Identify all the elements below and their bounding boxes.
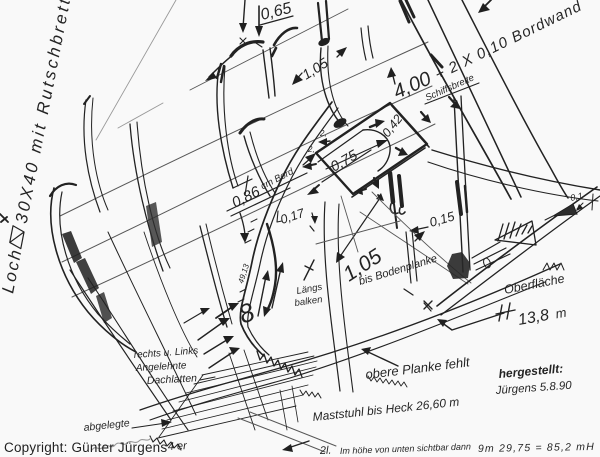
svg-text:9m 29,75 = 85,2 mH: 9m 29,75 = 85,2 mH (478, 441, 595, 455)
svg-text:2,: 2, (319, 129, 327, 138)
svg-text:2l.: 2l. (319, 445, 332, 457)
svg-text:2,: 2, (307, 145, 315, 154)
svg-text:Copyright: Günter Jürgens: Copyright: Günter Jürgens (4, 440, 167, 455)
svg-text:4 er: 4 er (168, 440, 189, 453)
